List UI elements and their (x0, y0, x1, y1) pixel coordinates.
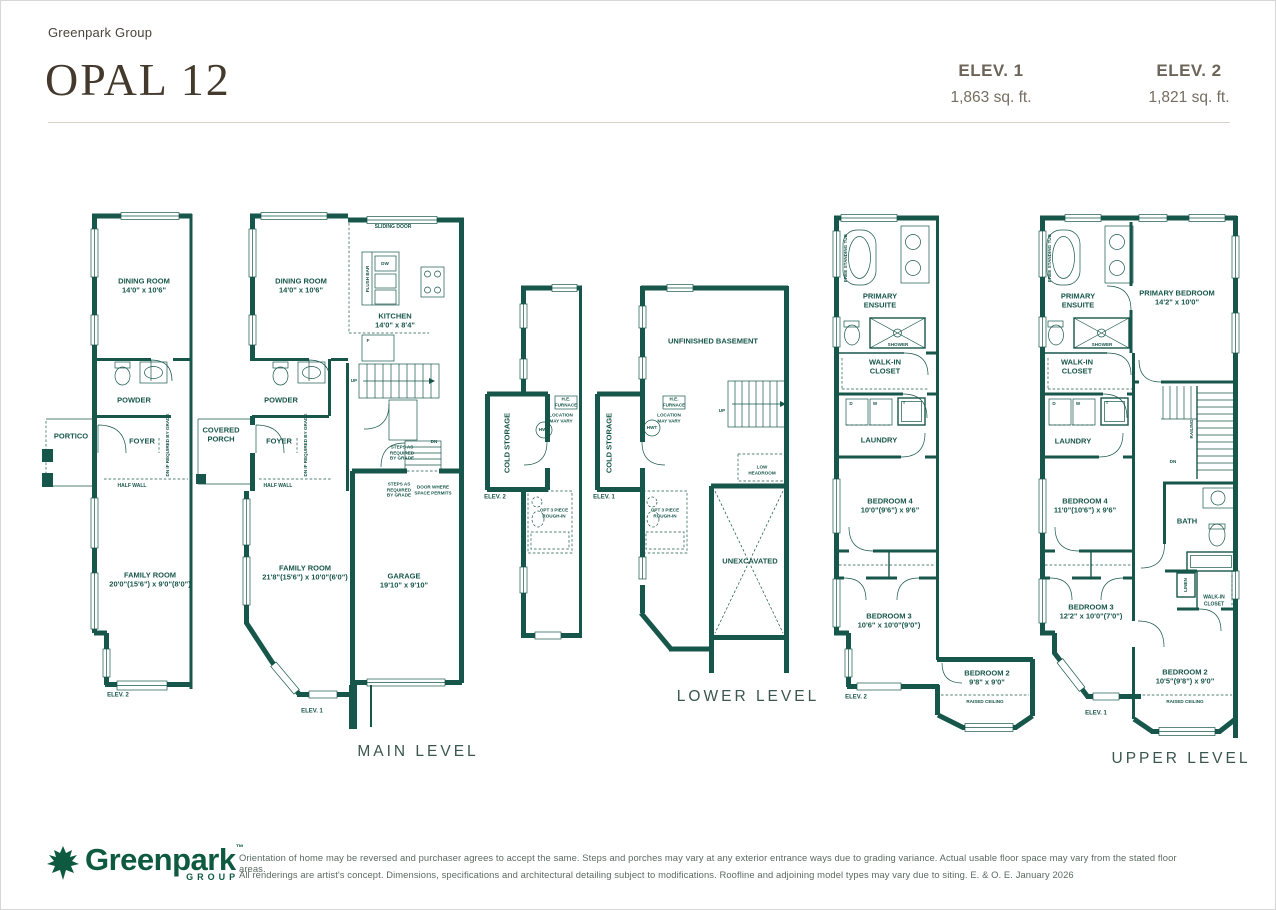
room-label-bed4-e2: BEDROOM 4 10'0"(9'6") x 9'6" (861, 497, 920, 516)
room-label-bed4-e1: BEDROOM 4 11'0"(10'6") x 9'6" (1054, 497, 1116, 516)
room-label-powder-e2: POWDER (117, 395, 151, 404)
note-half-wall-e1: HALF WALL (264, 483, 293, 490)
room-label-walkin-e2: WALK-IN CLOSET (869, 358, 901, 377)
note-stairs-grade: STEPS AS REQUIRED BY GRADE (390, 444, 414, 461)
note-up-main: UP (351, 378, 357, 384)
note-location-e2: LOCATION MAY VARY (549, 412, 573, 423)
room-label-ensuite-e2: PRIMARY ENSUITE (863, 292, 897, 311)
room-label-dining-e1: DINING ROOM 14'0" x 10'6" (275, 277, 327, 296)
brochure-page: Greenpark Group OPAL 12 ELEV. 1 1,863 sq… (0, 0, 1276, 910)
fixture-dw: DW (381, 261, 389, 267)
note-up-lower: UP (719, 408, 725, 414)
logo-tm: ™ (236, 843, 244, 852)
room-label-garage: GARAGE 19'10" x 9'10" (380, 572, 428, 591)
fixture-hwt-e2: HWT (539, 427, 549, 433)
note-flush-bar: FLUSH BAR (365, 266, 371, 293)
room-label-covered-porch: COVERED PORCH (202, 426, 239, 445)
elev-tag-main-e1: ELEV. 1 (301, 708, 323, 716)
note-railing: RAILING (1189, 420, 1195, 439)
elev-tag-upper-e2: ELEV. 2 (845, 694, 867, 702)
note-dn-grade-e1: DN IF REQUIRED BY GRADE (303, 414, 309, 477)
room-label-foyer-e2: FOYER (129, 436, 155, 445)
fixture-shower-e1: SHOWER (1092, 342, 1113, 348)
room-label-linen: LINEN (1183, 578, 1189, 592)
fixture-washer-e2: W (873, 401, 877, 407)
room-label-bed3-e2: BEDROOM 3 10'6" x 10'0"(9'0") (858, 612, 921, 631)
greenpark-logo: Greenpark™ GROUP (45, 844, 243, 882)
level-title-upper: UPPER LEVEL (1112, 750, 1251, 768)
room-label-bath: BATH (1177, 516, 1197, 525)
elev-tag-lower-e2: ELEV. 2 (484, 494, 506, 502)
note-sliding-door: SLIDING DOOR (375, 224, 412, 231)
note-location-e1: LOCATION MAY VARY (657, 412, 681, 423)
room-label-primary-bedroom: PRIMARY BEDROOM 14'2" x 10'0" (1139, 289, 1214, 308)
elev-tag-upper-e1: ELEV. 1 (1085, 710, 1107, 718)
room-label-unfinished-basement: UNFINISHED BASEMENT (668, 336, 758, 345)
room-label-unexcavated: UNEXCAVATED (722, 556, 777, 565)
room-label-foyer-e1: FOYER (266, 436, 292, 445)
room-label-laundry-e2: LAUNDRY (861, 435, 897, 444)
note-half-wall-e2: HALF WALL (118, 483, 147, 490)
note-raised-ceiling-e2: RAISED CEILING (966, 699, 1003, 705)
fixture-hwt-e1: HWT (647, 425, 657, 431)
room-label-ensuite-e1: PRIMARY ENSUITE (1061, 292, 1095, 311)
fixture-furnace-e1: H.E. FURNACE (663, 396, 685, 407)
maple-leaf-icon (45, 845, 81, 881)
room-label-family-e1: FAMILY ROOM 21'8"(15'6") x 10'0"(6'0") (262, 564, 348, 583)
note-dn-grade-e2: DN IF REQUIRED BY GRADE (165, 414, 171, 477)
fixture-furnace-e2: H.E. FURNACE (555, 396, 577, 407)
note-raised-ceiling-e1: RAISED CEILING (1166, 699, 1203, 705)
disclaimer-line-2: All renderings are artist's concept. Dim… (239, 869, 1199, 880)
elev-tag-lower-e1: ELEV. 1 (593, 494, 615, 502)
fixture-tub-e2: T (903, 400, 906, 406)
fixture-shower-e2: SHOWER (888, 342, 909, 348)
note-tub-e2: FREE STANDING TUB (843, 234, 849, 282)
elev-tag-main-e2: ELEV. 2 (107, 692, 129, 700)
note-door-space: DOOR WHERE SPACE PERMITS (414, 484, 451, 495)
room-label-powder-e1: POWDER (264, 395, 298, 404)
note-tub-e1: FREE STANDING TUB (1047, 234, 1053, 282)
fixture-fridge: F (367, 338, 370, 344)
room-label-laundry-e1: LAUNDRY (1055, 436, 1091, 445)
note-opt-bath-e2: OPT 3 PIECE ROUGH-IN (540, 507, 568, 518)
lower-level-elev2-walls (487, 285, 582, 640)
floorplan-drawing (1, 1, 1276, 910)
logo-wordmark: Greenpark™ (85, 844, 243, 875)
room-label-kitchen: KITCHEN 14'0" x 8'4" (375, 312, 415, 331)
room-label-bed2-e1: BEDROOM 2 10'5"(9'8") x 9'0" (1156, 668, 1215, 687)
room-label-family-e2: FAMILY ROOM 20'0"(15'6") x 9'0"(8'0") (109, 571, 190, 590)
room-label-portico: PORTICO (54, 431, 88, 440)
note-low-headroom: LOW HEADROOM (748, 464, 775, 475)
fixture-washer-e1: W (1076, 401, 1080, 407)
fixture-dryer-e1: D (1052, 401, 1055, 407)
level-title-lower: LOWER LEVEL (677, 688, 819, 706)
room-label-cold-storage-e1: COLD STORAGE (604, 413, 613, 473)
room-label-bed3-e1: BEDROOM 3 12'2" x 10'0"(7'0") (1060, 603, 1123, 622)
note-dn-upper: DN (1170, 459, 1177, 465)
level-title-main: MAIN LEVEL (357, 743, 478, 761)
note-dn-main: DN (431, 439, 438, 445)
room-label-walkin-e1: WALK-IN CLOSET (1061, 358, 1093, 377)
fixture-dryer-e2: D (849, 401, 852, 407)
note-steps-grade: STEPS AS REQUIRED BY GRADE (387, 481, 411, 498)
note-opt-bath-e1: OPT 3 PIECE ROUGH-IN (651, 507, 679, 518)
room-label-bed2-e2: BEDROOM 2 9'8" x 9'0" (964, 669, 1009, 688)
room-label-walkin2: WALK-IN CLOSET (1203, 595, 1224, 608)
main-level-elev1-walls (196, 213, 464, 730)
room-label-dining-e2: DINING ROOM 14'0" x 10'6" (118, 277, 170, 296)
room-label-cold-storage-e2: COLD STORAGE (502, 413, 511, 473)
fixture-tub-e1: T (1106, 400, 1109, 406)
